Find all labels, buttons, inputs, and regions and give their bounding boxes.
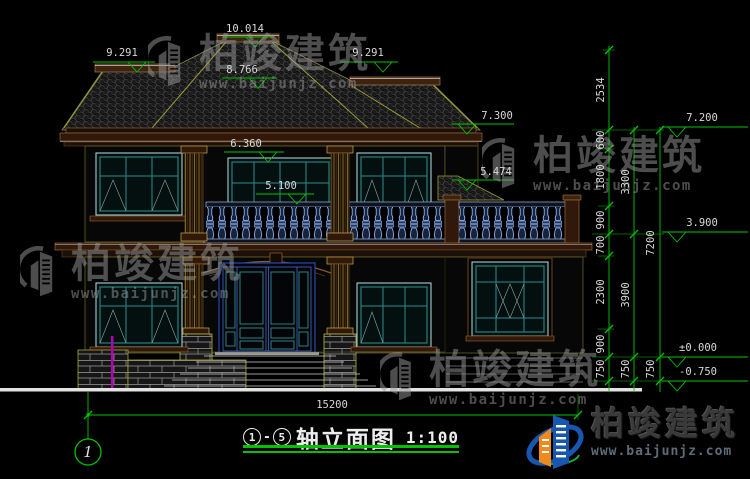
- logo-website: www.baijunjz.com: [591, 444, 739, 459]
- axis-bubble-number: 1: [83, 443, 93, 461]
- axis-end-bubble: 5: [273, 428, 291, 446]
- level-label-floor1: ±0.000: [679, 343, 717, 354]
- window-2f-left: [90, 153, 188, 221]
- watermark-website: www.baijunjz.com: [199, 76, 371, 92]
- watermark-website: www.baijunjz.com: [429, 392, 601, 408]
- watermark: 柏竣建筑 www.baijunjz.com: [20, 244, 243, 302]
- dimension-ticks: [605, 46, 664, 385]
- chain-dim: 3300: [621, 169, 632, 194]
- level-label-floor2: 3.900: [686, 218, 718, 229]
- level-label-site: -0.750: [679, 367, 717, 378]
- level-label-right-eave: 7.300: [481, 111, 513, 122]
- total-width-dim: 15200: [316, 400, 348, 411]
- level-label-window-sill: 5.100: [265, 181, 297, 192]
- watermark-website: www.baijunjz.com: [71, 286, 243, 302]
- window-1f-center: [351, 283, 437, 352]
- chain-dim: 2300: [596, 279, 607, 304]
- downspout-line: [111, 336, 114, 388]
- level-label-floor2-top: 7.200: [686, 113, 718, 124]
- title-underline: [243, 445, 459, 448]
- title-scale: 1:100: [406, 428, 459, 447]
- title-underline: [243, 451, 459, 453]
- eave-cornice: [60, 128, 482, 146]
- chain-dim: 900: [596, 211, 607, 230]
- chain-dim: 1800: [596, 164, 607, 189]
- chain-dim: 600: [596, 131, 607, 150]
- level-label-left-ridge: 9.291: [106, 48, 138, 59]
- chain-dim: 2534: [596, 77, 607, 102]
- logo-building-icon: [525, 407, 587, 473]
- title-text: 轴立面图: [296, 420, 396, 454]
- logo-brand-name: 柏竣建筑: [591, 407, 739, 442]
- watermark-brand-name: 柏竣建筑: [199, 34, 371, 75]
- watermark: 柏竣建筑 www.baijunjz.com: [482, 136, 705, 194]
- level-label-peak: 10.014: [226, 24, 264, 35]
- chain-dim: 750: [646, 360, 657, 379]
- level-label-balcony-top: 6.360: [230, 139, 262, 150]
- brand-building-icon: [148, 34, 194, 88]
- watermark: 柏竣建筑 www.baijunjz.com: [380, 350, 601, 408]
- level-label-terrace-roof: 5.474: [480, 167, 512, 178]
- chain-dim: 3900: [621, 282, 632, 307]
- balcony: [204, 195, 581, 243]
- brand-building-icon: [20, 244, 66, 298]
- watermark-brand-name: 柏竣建筑: [429, 350, 601, 391]
- cad-sheet: 柏竣建筑 www.baijunjz.com 柏竣建筑 www.baijunjz.…: [0, 0, 750, 479]
- watermark: 柏竣建筑 www.baijunjz.com: [148, 34, 371, 92]
- axis-start-bubble: 1: [243, 428, 261, 446]
- drawing-title: 1 - 5 轴立面图 1:100: [243, 420, 459, 454]
- window-1f-right-wing: [466, 258, 554, 341]
- brand-building-icon: [380, 350, 424, 402]
- level-label-upper-ridge: 8.766: [226, 65, 258, 76]
- chain-dim: 7200: [646, 230, 657, 255]
- chain-dim: 900: [596, 335, 607, 354]
- chain-dim: 700: [596, 236, 607, 255]
- title-dash: -: [263, 430, 271, 445]
- chain-dim: 750: [621, 360, 632, 379]
- watermark-brand-name: 柏竣建筑: [71, 244, 243, 285]
- brand-building-icon: [482, 136, 528, 190]
- chain-dim: 750: [596, 360, 607, 379]
- level-label-right-ridge: 9.291: [352, 48, 384, 59]
- brand-logo: 柏竣建筑 www.baijunjz.com: [525, 407, 739, 473]
